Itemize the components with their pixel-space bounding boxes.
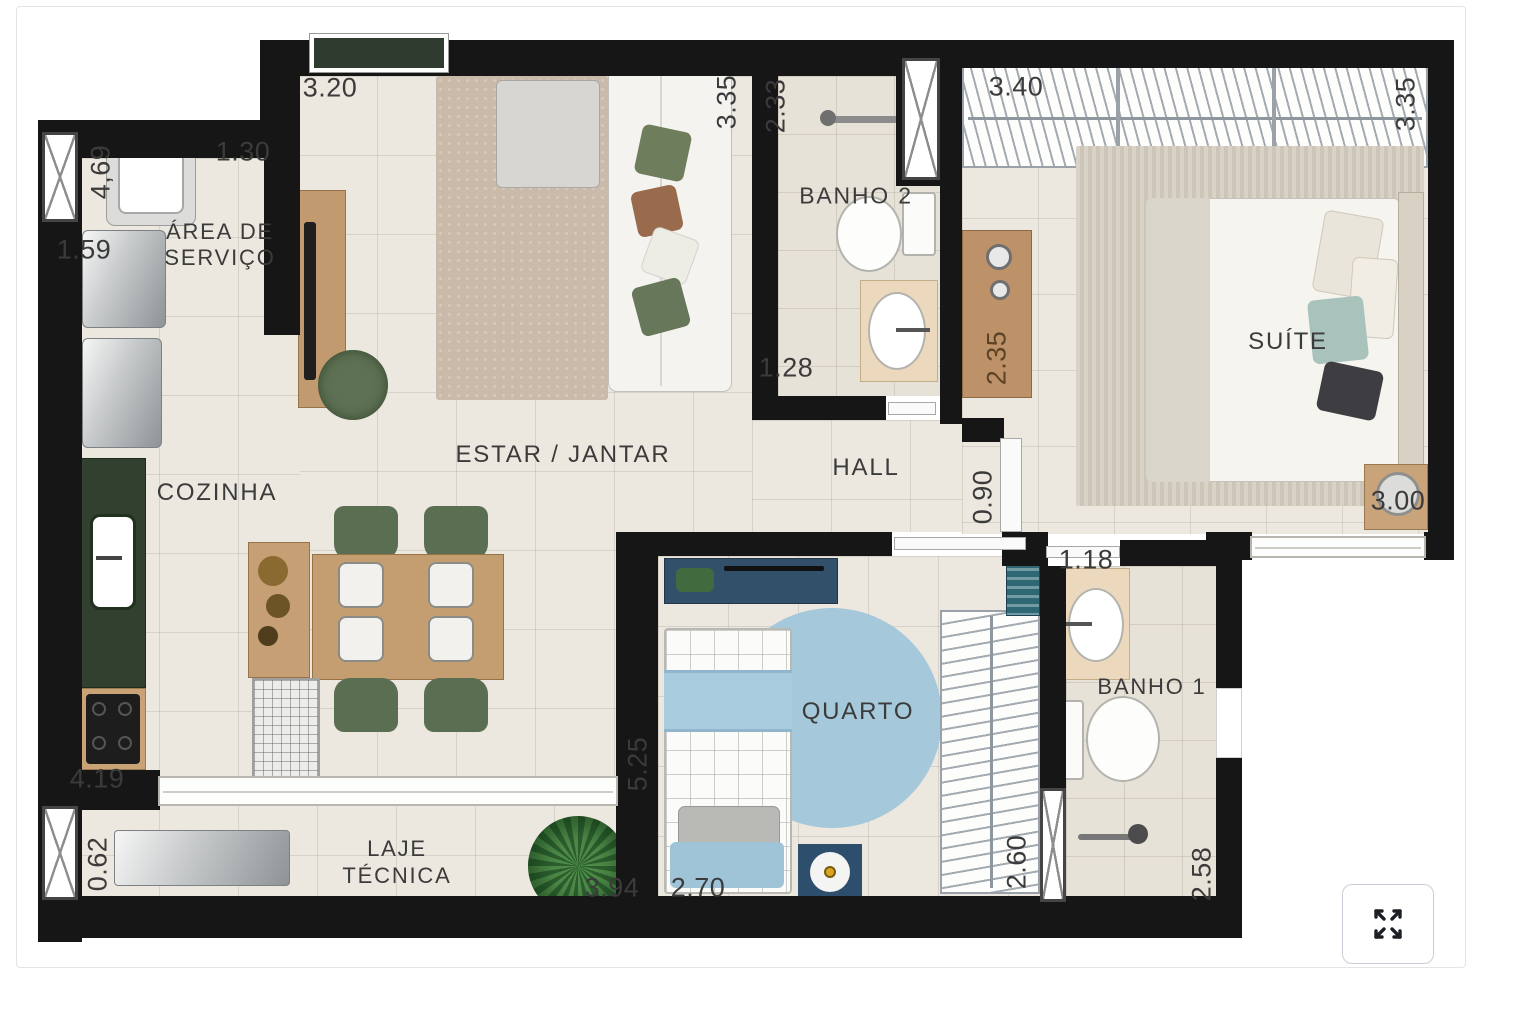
towel-bar <box>826 116 898 123</box>
dim-banho2-width: 1.28 <box>759 353 814 384</box>
stove-burner <box>118 736 132 750</box>
suite-dresser-knob <box>986 244 1012 270</box>
dim-hall-width: 0.90 <box>968 470 999 525</box>
window-servico <box>42 132 78 222</box>
window-laje <box>42 806 78 900</box>
room-label-laje-line1: LAJE <box>367 836 427 862</box>
kitchen-faucet <box>96 556 122 560</box>
stove-burner <box>92 736 106 750</box>
room-label-banho1: BANHO 1 <box>1097 674 1206 700</box>
dim-banho1-width: 1.18 <box>1059 545 1114 576</box>
console-decor <box>266 594 290 618</box>
room-label-quarto: QUARTO <box>802 698 915 726</box>
door-banho2 <box>888 402 936 415</box>
dining-chair <box>334 506 398 560</box>
ac-condenser <box>114 830 290 886</box>
quarto-shelf-line <box>724 566 824 571</box>
toilet-banho1 <box>1086 696 1160 782</box>
dim-servico-height: 4,69 <box>86 145 117 200</box>
dining-chair <box>334 678 398 732</box>
dining-chair <box>424 678 488 732</box>
room-label-laje-line2: TÉCNICA <box>342 863 451 889</box>
room-label-estar-jantar: ESTAR / JANTAR <box>456 441 671 469</box>
fridge <box>82 338 162 448</box>
banho1-right-notch <box>1216 688 1242 758</box>
console-decor <box>258 556 288 586</box>
room-label-suite: SUÍTE <box>1248 328 1328 356</box>
quarto-bed-stripe <box>664 670 792 732</box>
door-quarto <box>894 537 1026 550</box>
dim-servico-washer: 1.59 <box>57 235 112 266</box>
dim-cozinha-wall: 4.19 <box>70 764 125 795</box>
dim-estar-width: 3.20 <box>303 73 358 104</box>
room-label-area-servico-line2: SERVIÇO <box>164 245 275 271</box>
suite-window-sill <box>1250 536 1426 558</box>
wall <box>1428 40 1454 560</box>
dim-quarto-closet: 2.60 <box>1002 835 1033 890</box>
room-label-banho2: BANHO 2 <box>799 183 913 210</box>
suite-duvet-fold <box>1146 198 1210 482</box>
console-decor <box>258 626 278 646</box>
faucet-banho1 <box>1062 622 1092 626</box>
dim-banho1-height: 2.58 <box>1187 847 1218 902</box>
fullscreen-button[interactable] <box>1342 884 1434 964</box>
room-label-hall: HALL <box>832 454 899 482</box>
tv <box>304 222 316 380</box>
suite-headboard <box>1398 192 1424 488</box>
wall <box>38 896 1242 938</box>
dim-suite-height: 3.35 <box>1391 77 1422 132</box>
dim-laje-width: 3.94 <box>585 873 640 904</box>
dining-chair <box>424 506 488 560</box>
dim-estar-height: 3.35 <box>712 75 743 130</box>
dim-suite-bed-wall: 3.00 <box>1371 486 1426 517</box>
wall <box>962 418 1004 442</box>
towel-bar-knob <box>820 110 836 126</box>
dim-banho2-height: 2.33 <box>761 79 792 134</box>
door-entrance-suite <box>1000 438 1022 532</box>
dim-suite-closet: 2.35 <box>982 331 1013 386</box>
floor-plant-living <box>318 350 388 420</box>
dim-suite-width: 3.40 <box>989 72 1044 103</box>
place-setting <box>338 616 384 662</box>
dim-servico-width: 1.30 <box>216 137 271 168</box>
place-setting <box>428 616 474 662</box>
quarto-wall-shelf <box>1006 558 1040 616</box>
dim-estar-wall: 5.25 <box>623 737 654 792</box>
quarto-lamp-bulb <box>824 866 836 878</box>
room-label-area-servico-line1: ÁREA DE <box>166 219 274 245</box>
room-label-cozinha: COZINHA <box>157 479 278 507</box>
stove-burner <box>92 702 106 716</box>
suite-dresser-knob <box>990 280 1010 300</box>
window-banho1 <box>1040 788 1066 902</box>
planter-box <box>310 34 448 72</box>
floorplan-page: 4,69 1.30 ÁREA DE SERVIÇO 1.59 3.20 3.35… <box>0 0 1518 1022</box>
shower-head <box>1128 824 1148 844</box>
wall <box>1424 532 1454 560</box>
wall <box>958 40 1454 68</box>
dim-laje-window: 0.62 <box>83 837 114 892</box>
faucet-banho2 <box>896 328 930 332</box>
expand-arrows-icon <box>1367 905 1409 943</box>
wall <box>752 396 886 420</box>
dim-quarto-width: 2.70 <box>671 873 726 904</box>
stove-burner <box>118 702 132 716</box>
sofa-pillow <box>633 123 692 182</box>
ottoman <box>496 80 600 188</box>
bar-cart <box>252 678 320 780</box>
place-setting <box>338 562 384 608</box>
kitchen-sink <box>90 514 136 610</box>
window-shaft <box>902 58 940 180</box>
place-setting <box>428 562 474 608</box>
wall <box>1040 566 1066 788</box>
laje-sliding-window <box>158 776 618 806</box>
quarto-shelf-plant <box>676 568 714 592</box>
